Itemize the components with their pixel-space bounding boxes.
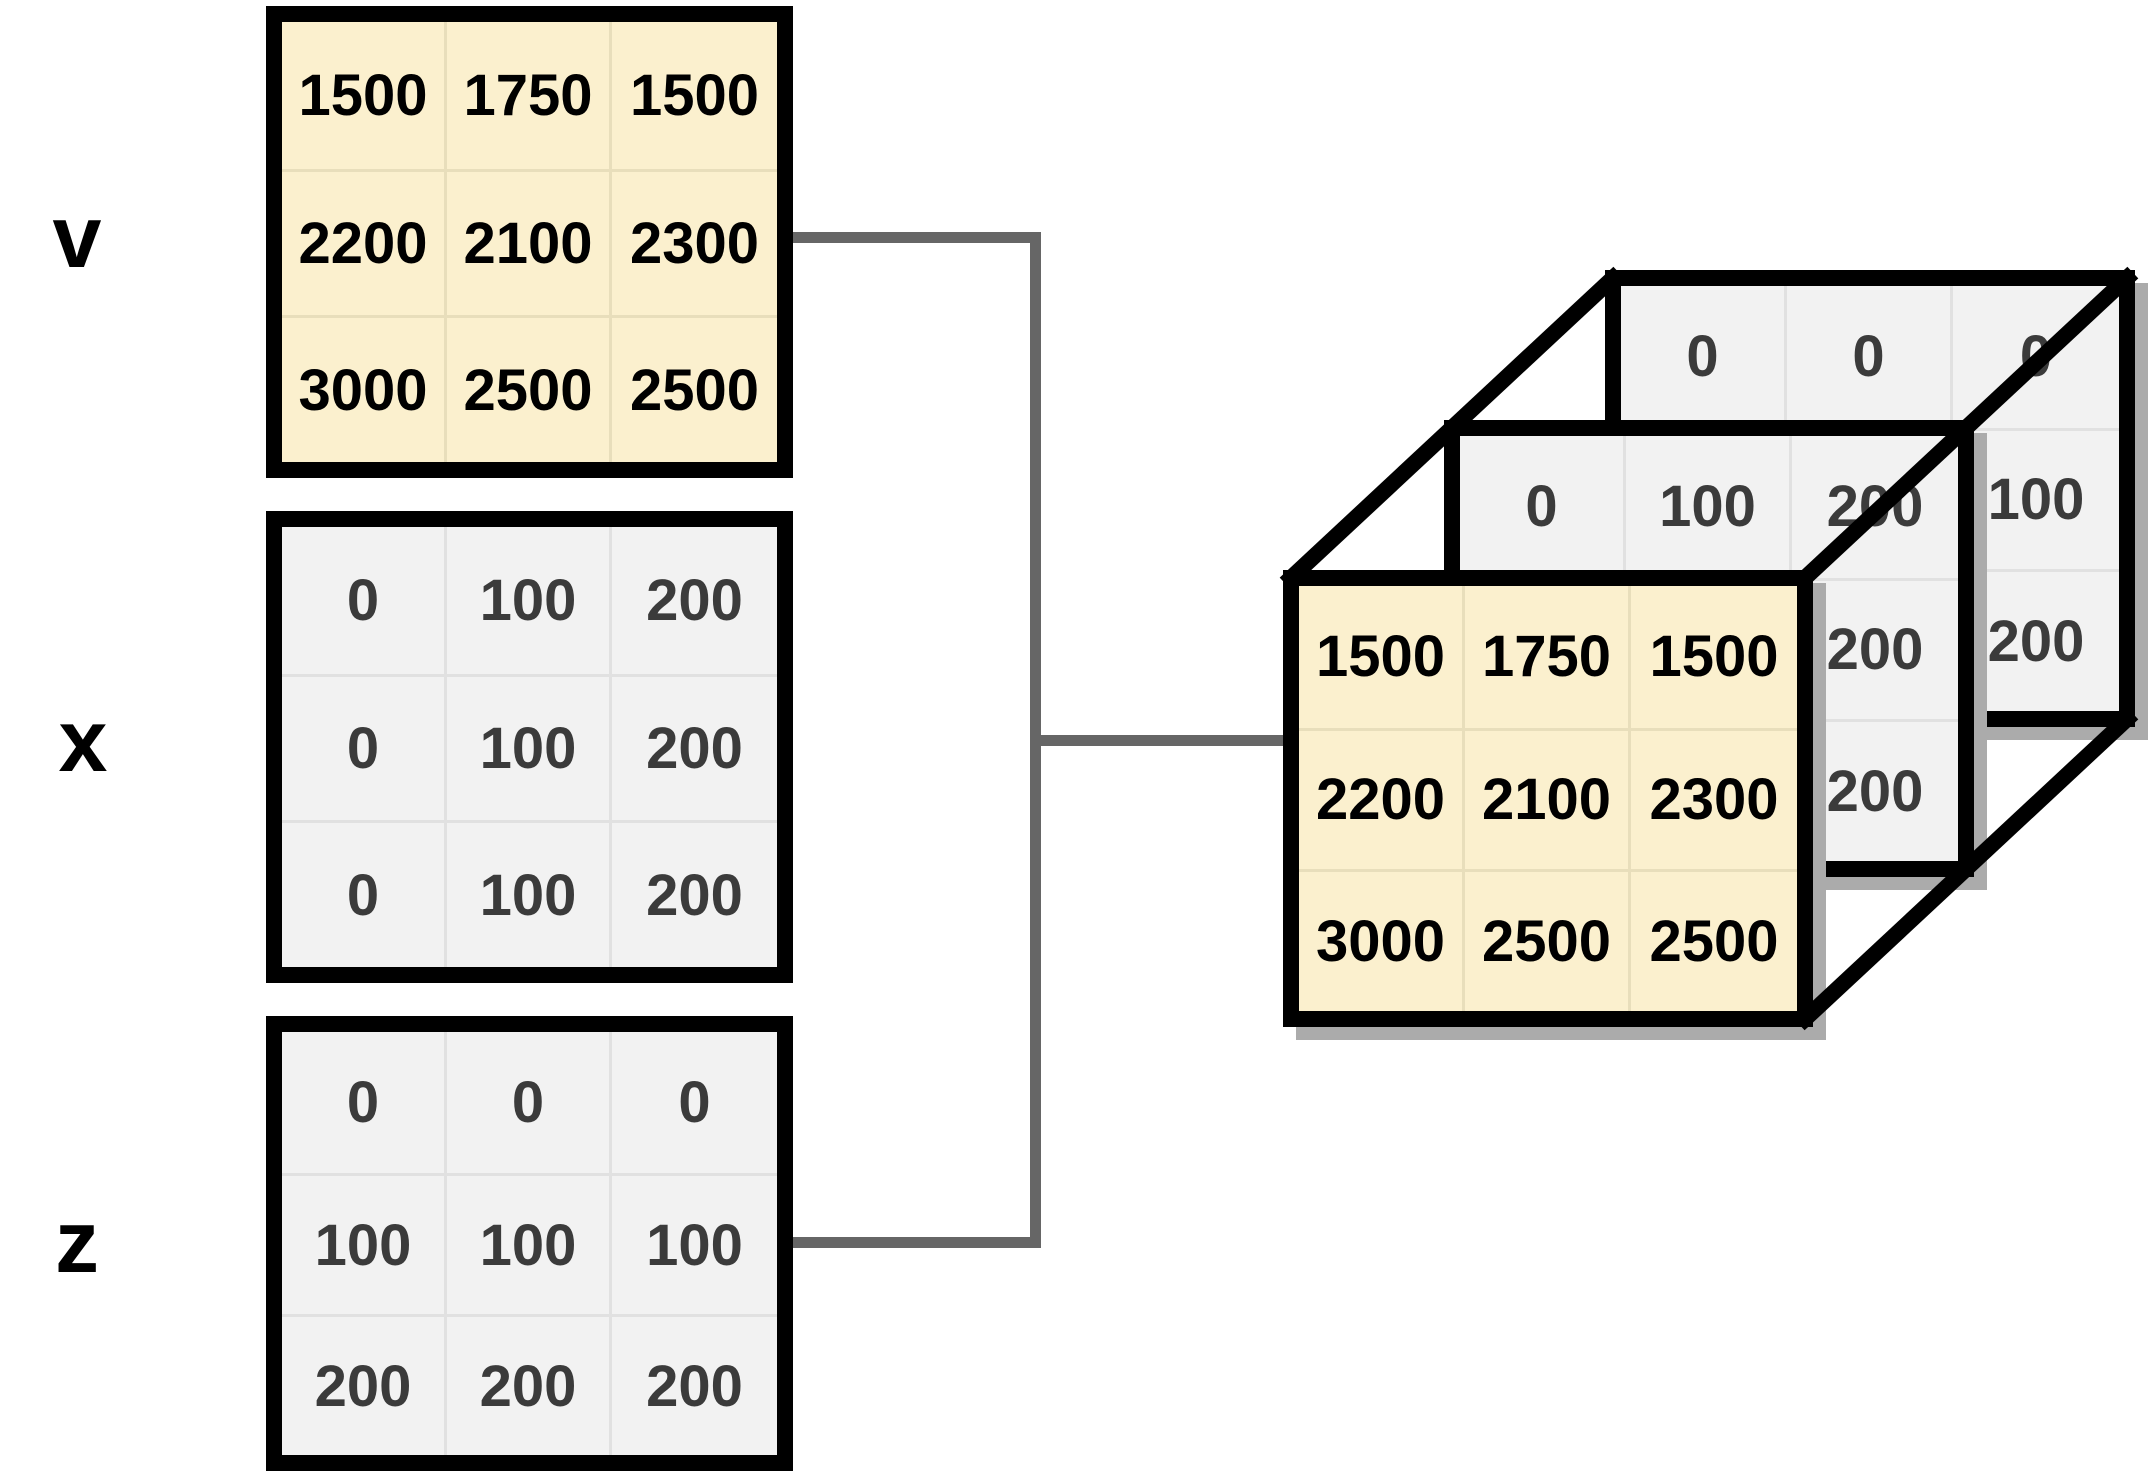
matrix-cell: 0 <box>1953 286 2119 428</box>
matrix-cell: 2200 <box>1299 728 1465 870</box>
matrix-cell: 2100 <box>1465 728 1631 870</box>
matrix-cell: 200 <box>447 1314 612 1455</box>
matrix-cell: 200 <box>612 820 777 967</box>
matrix-cell: 200 <box>282 1314 447 1455</box>
matrix-cell: 2500 <box>1465 869 1631 1011</box>
matrix-cell: 200 <box>1792 719 1958 861</box>
matrix-cell: 200 <box>1792 578 1958 720</box>
matrix-cell: 2300 <box>1631 728 1797 870</box>
label-z: z <box>55 1198 99 1286</box>
matrix-cell: 0 <box>447 1032 612 1173</box>
matrix-cell: 1500 <box>1631 586 1797 728</box>
label-x: x <box>59 697 108 785</box>
matrix-cell: 1500 <box>282 22 447 169</box>
matrix-cube-diagram: v x z 1500175015002200210023003000250025… <box>0 0 2150 1475</box>
label-v: v <box>53 193 102 281</box>
matrix-cell: 200 <box>612 674 777 821</box>
cube-front-plane-v: 150017501500220021002300300025002500 <box>1283 570 1813 1027</box>
matrix-cell: 2200 <box>282 169 447 316</box>
connector-from-z-matrix <box>793 1237 1041 1248</box>
matrix-cell: 100 <box>612 1173 777 1314</box>
matrix-cell: 0 <box>1787 286 1953 428</box>
connector-from-v-matrix <box>793 232 1041 243</box>
matrix-cell: 100 <box>447 527 612 674</box>
matrix-cell: 0 <box>282 674 447 821</box>
matrix-cell: 200 <box>1953 569 2119 711</box>
connector-to-cube <box>1030 735 1296 746</box>
matrix-cell: 200 <box>1792 436 1958 578</box>
matrix-cell: 100 <box>1626 436 1792 578</box>
matrix-cell: 1750 <box>1465 586 1631 728</box>
matrix-cell: 0 <box>612 1032 777 1173</box>
matrix-cell: 2500 <box>447 315 612 462</box>
matrix-cell: 1500 <box>1299 586 1465 728</box>
matrix-cell: 200 <box>612 527 777 674</box>
matrix-v: 150017501500220021002300300025002500 <box>266 6 793 478</box>
matrix-cell: 200 <box>612 1314 777 1455</box>
matrix-cell: 0 <box>1460 436 1626 578</box>
matrix-cell: 100 <box>1953 428 2119 570</box>
matrix-cell: 100 <box>447 820 612 967</box>
matrix-cell: 100 <box>447 1173 612 1314</box>
matrix-cell: 1750 <box>447 22 612 169</box>
matrix-cell: 0 <box>282 1032 447 1173</box>
matrix-cell: 100 <box>447 674 612 821</box>
matrix-cell: 2300 <box>612 169 777 316</box>
matrix-cell: 2500 <box>1631 869 1797 1011</box>
matrix-cell: 0 <box>282 820 447 967</box>
matrix-cell: 3000 <box>1299 869 1465 1011</box>
matrix-z: 000100100100200200200 <box>266 1016 793 1471</box>
matrix-cell: 0 <box>282 527 447 674</box>
matrix-x: 010020001002000100200 <box>266 511 793 983</box>
matrix-cell: 100 <box>282 1173 447 1314</box>
matrix-cell: 1500 <box>612 22 777 169</box>
matrix-cell: 2500 <box>612 315 777 462</box>
matrix-cell: 2100 <box>447 169 612 316</box>
matrix-cell: 0 <box>1621 286 1787 428</box>
matrix-cell: 3000 <box>282 315 447 462</box>
